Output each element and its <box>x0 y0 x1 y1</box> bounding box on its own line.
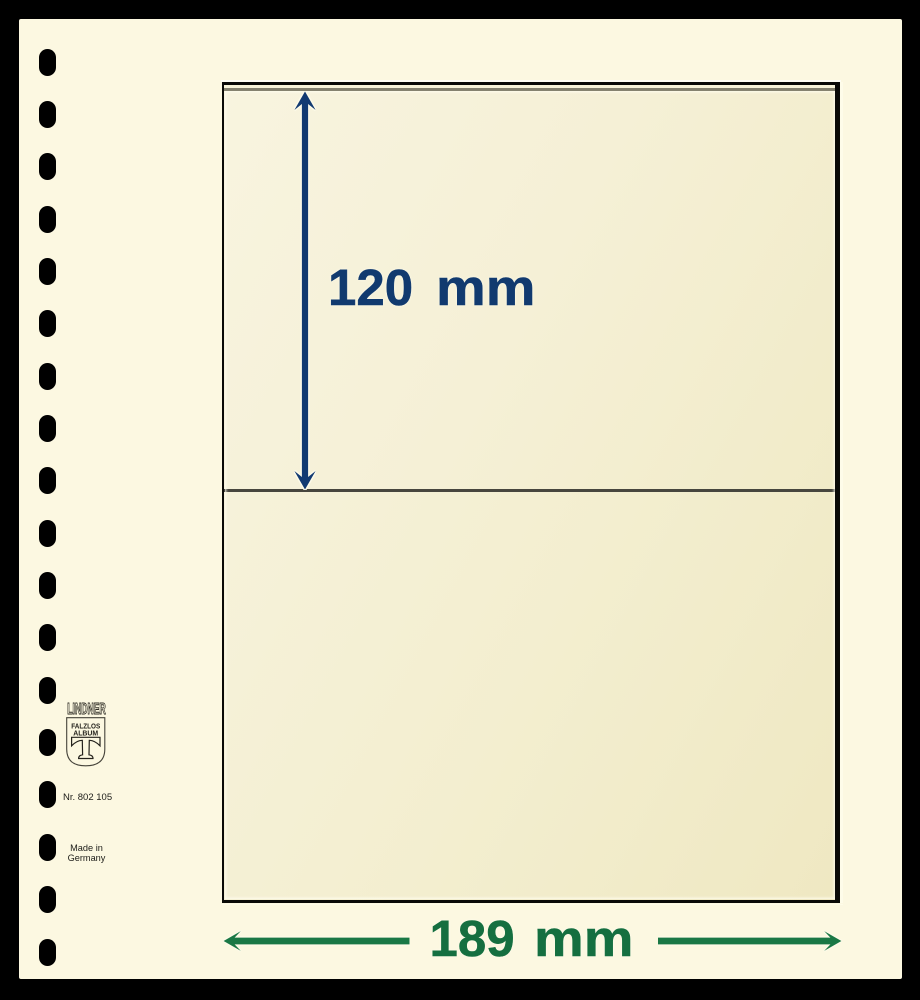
svg-text:LINDNER: LINDNER <box>67 701 106 717</box>
svg-text:ALBUM: ALBUM <box>73 728 98 737</box>
